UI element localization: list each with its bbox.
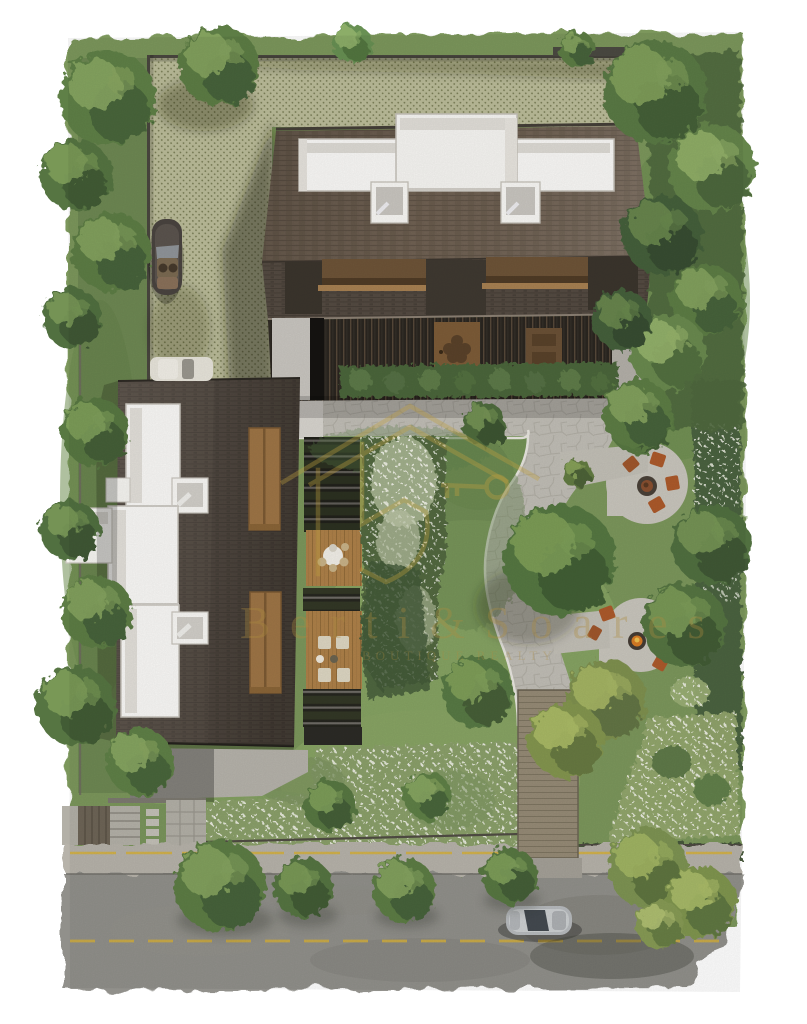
svg-text:Berti&Soares: Berti&Soares <box>240 598 725 648</box>
svg-text:BOUTIQUE REALTY: BOUTIQUE REALTY <box>362 648 557 663</box>
